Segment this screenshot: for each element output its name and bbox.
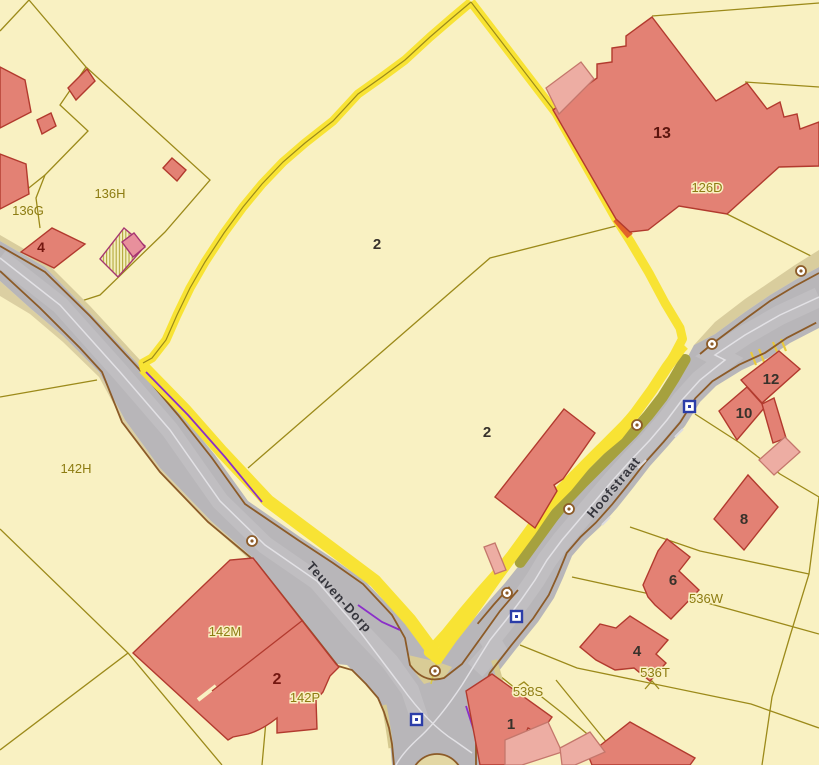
svg-text:2: 2	[373, 236, 381, 253]
svg-text:142M: 142M	[209, 624, 242, 639]
svg-text:2: 2	[273, 671, 282, 688]
svg-text:6: 6	[669, 572, 677, 589]
svg-text:126D: 126D	[691, 180, 722, 195]
svg-text:536T: 536T	[640, 665, 670, 680]
svg-text:142H: 142H	[60, 461, 91, 476]
svg-text:142P: 142P	[290, 690, 320, 705]
svg-text:536W: 536W	[689, 591, 724, 606]
svg-text:8: 8	[740, 511, 748, 528]
svg-text:4: 4	[633, 643, 642, 660]
svg-text:4: 4	[37, 239, 45, 255]
svg-text:2: 2	[483, 424, 491, 441]
svg-text:13: 13	[653, 125, 671, 142]
svg-text:136H: 136H	[94, 186, 125, 201]
svg-text:10: 10	[736, 405, 753, 422]
svg-text:12: 12	[763, 371, 780, 388]
svg-text:1: 1	[507, 716, 515, 733]
svg-text:538S: 538S	[513, 684, 544, 699]
svg-text:136G: 136G	[12, 203, 44, 218]
